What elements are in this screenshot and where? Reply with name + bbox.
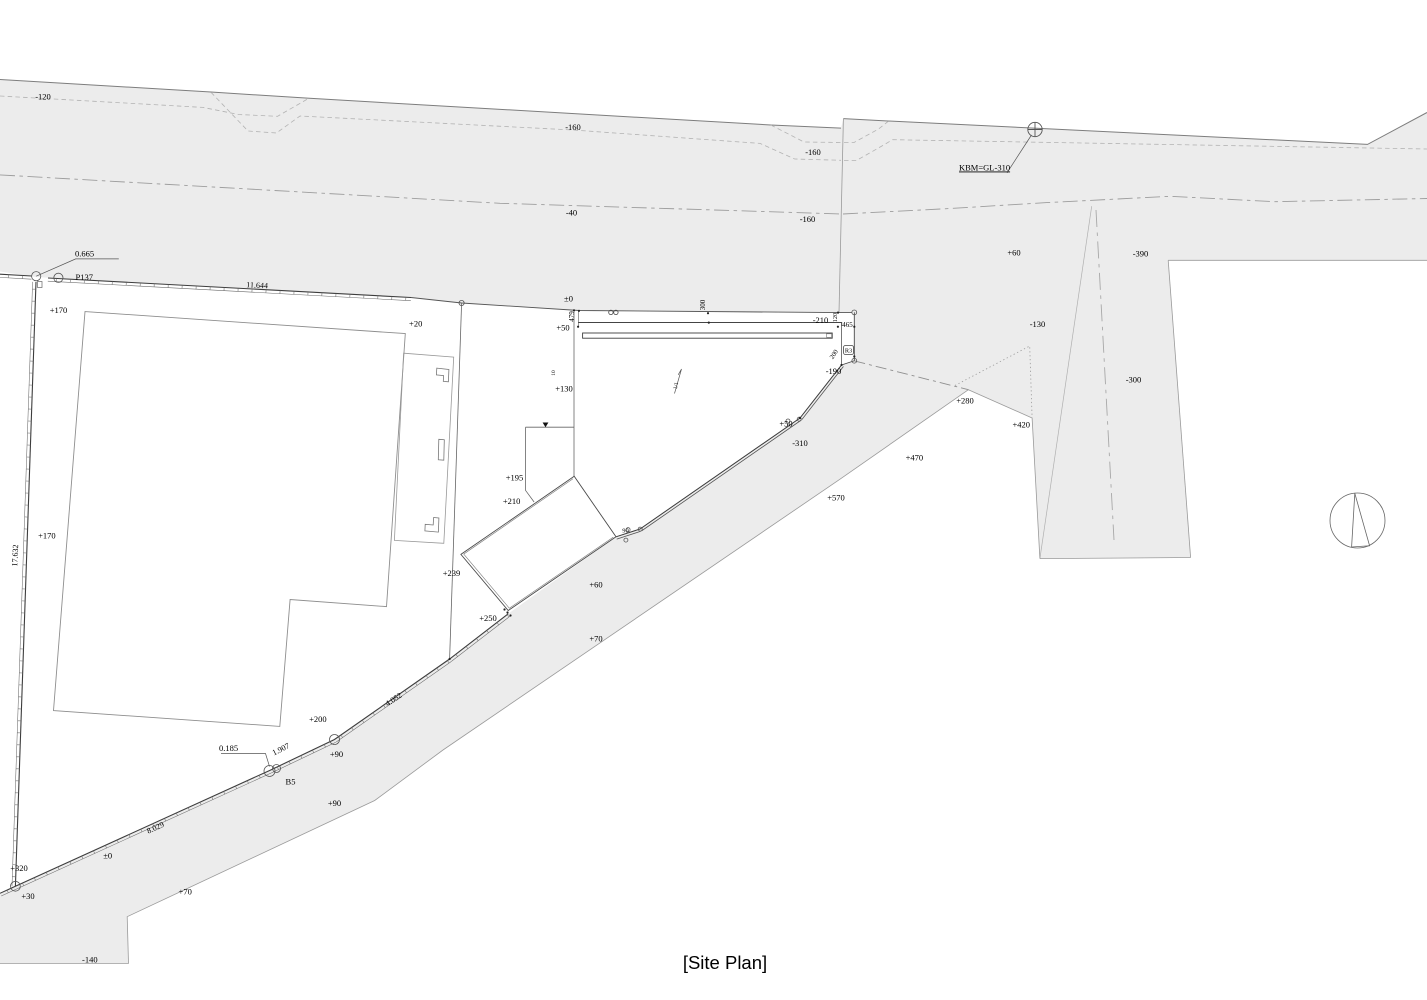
svg-text:B5: B5 [286, 777, 296, 787]
svg-text:+470: +470 [906, 453, 924, 463]
svg-text:-210: -210 [813, 315, 829, 325]
svg-text:-310: -310 [792, 438, 808, 448]
svg-text:465: 465 [842, 321, 853, 329]
svg-text:1.907: 1.907 [271, 741, 291, 757]
svg-text:120: 120 [832, 313, 839, 322]
svg-text:+280: +280 [956, 396, 974, 406]
svg-text:±0: ±0 [103, 851, 112, 861]
svg-text:+320: +320 [10, 863, 28, 873]
svg-text:-160: -160 [805, 147, 821, 157]
svg-text:+239: +239 [443, 568, 461, 578]
svg-text:+70: +70 [179, 887, 192, 897]
svg-text:±0: ±0 [564, 293, 573, 303]
svg-text:P137: P137 [76, 272, 93, 282]
svg-text:-160: -160 [565, 122, 581, 132]
svg-text:479: 479 [568, 311, 576, 322]
svg-text:+20: +20 [409, 319, 422, 329]
svg-text:+200: +200 [309, 714, 327, 724]
svg-text:+60: +60 [1007, 248, 1020, 258]
svg-text:+170: +170 [50, 305, 68, 315]
svg-text:11.644: 11.644 [246, 280, 268, 290]
svg-text:R3: R3 [845, 348, 852, 355]
svg-text:+420: +420 [1013, 420, 1031, 430]
svg-text:-120: -120 [35, 92, 51, 102]
svg-text:-390: -390 [1133, 249, 1149, 259]
svg-text:0.185: 0.185 [219, 743, 238, 753]
svg-text:+195: +195 [506, 473, 524, 483]
svg-text:+570: +570 [827, 493, 845, 503]
svg-text:[Site Plan]: [Site Plan] [683, 952, 767, 973]
svg-text:10: 10 [551, 370, 557, 376]
svg-text:KBM=GL-310: KBM=GL-310 [959, 163, 1010, 173]
svg-text:+30: +30 [21, 891, 34, 901]
svg-text:+130: +130 [555, 383, 573, 393]
svg-text:-190: -190 [826, 366, 842, 376]
svg-text:+210: +210 [503, 496, 521, 506]
svg-text:200: 200 [829, 349, 840, 361]
svg-text:+90: +90 [328, 798, 341, 808]
svg-text:+170: +170 [38, 531, 56, 541]
svg-text:+50: +50 [779, 418, 792, 428]
svg-text:90: 90 [622, 528, 629, 535]
svg-text:-40: -40 [566, 208, 577, 218]
svg-text:-300: -300 [1126, 375, 1142, 385]
svg-text:-140: -140 [82, 955, 98, 965]
svg-text:17.632: 17.632 [10, 544, 20, 566]
svg-text:300: 300 [699, 299, 707, 310]
svg-text:+60: +60 [589, 579, 602, 589]
svg-text:-130: -130 [1030, 319, 1046, 329]
svg-text:+70: +70 [589, 633, 602, 643]
svg-text:1/1: 1/1 [673, 381, 680, 389]
svg-text:+50: +50 [556, 322, 569, 332]
svg-text:-160: -160 [800, 214, 816, 224]
svg-text:+250: +250 [479, 613, 497, 623]
svg-text:0.665: 0.665 [75, 248, 94, 258]
svg-text:+90: +90 [330, 749, 343, 759]
